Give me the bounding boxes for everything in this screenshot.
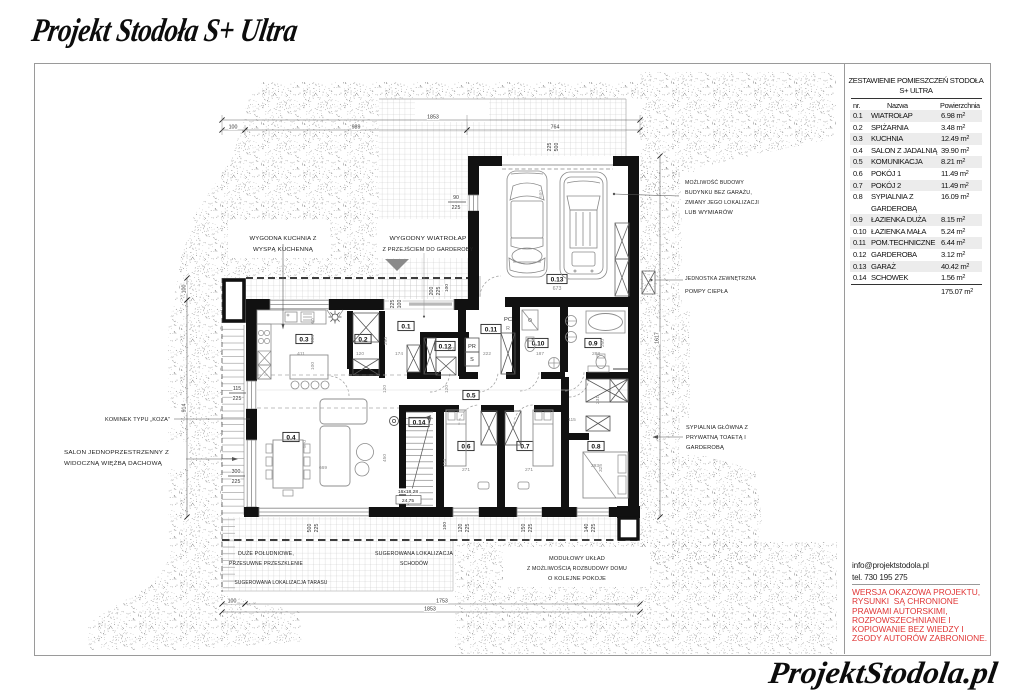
svg-text:115: 115	[568, 417, 576, 423]
svg-text:ZMIANY JEGO LOKALIZACJI: ZMIANY JEGO LOKALIZACJI	[685, 200, 759, 206]
svg-text:500: 500	[554, 143, 560, 152]
svg-text:580: 580	[538, 190, 544, 198]
svg-text:Z MOŻLIWOŚCIĄ ROZBUDOWY DOMU: Z MOŻLIWOŚCIĄ ROZBUDOWY DOMU	[527, 564, 627, 572]
svg-text:1753: 1753	[436, 598, 448, 604]
svg-text:R: R	[506, 326, 510, 332]
svg-text:989: 989	[352, 124, 361, 130]
svg-text:225: 225	[591, 524, 597, 533]
svg-text:1617: 1617	[655, 332, 661, 344]
svg-text:90: 90	[453, 195, 459, 201]
svg-text:231: 231	[595, 396, 601, 404]
svg-text:120: 120	[458, 524, 464, 533]
svg-text:100: 100	[182, 285, 188, 294]
svg-text:0.11: 0.11	[485, 326, 498, 333]
svg-text:0.3: 0.3	[299, 336, 308, 343]
svg-text:225: 225	[465, 524, 471, 533]
svg-text:225: 225	[390, 300, 396, 309]
svg-text:WYGODNY WIATROŁAP: WYGODNY WIATROŁAP	[390, 236, 467, 242]
svg-text:172: 172	[448, 346, 456, 351]
svg-text:WIDOCZNĄ WIĘŻBĄ DACHOWĄ: WIDOCZNĄ WIĘŻBĄ DACHOWĄ	[64, 460, 162, 467]
svg-text:SCHODÓW: SCHODÓW	[400, 560, 428, 567]
svg-text:POMPY CIEPŁA: POMPY CIEPŁA	[685, 289, 728, 295]
svg-text:325: 325	[598, 464, 604, 472]
svg-text:673: 673	[553, 286, 562, 292]
svg-text:250: 250	[600, 339, 606, 347]
svg-text:120: 120	[356, 351, 364, 357]
svg-text:100: 100	[310, 362, 316, 370]
svg-text:PRYWATNĄ TOAETĄ I: PRYWATNĄ TOAETĄ I	[686, 435, 746, 441]
svg-text:0.8: 0.8	[591, 443, 600, 450]
svg-text:PR: PR	[468, 344, 476, 350]
svg-text:LUB WYMIARÓW: LUB WYMIARÓW	[685, 209, 733, 216]
svg-text:MOŻLIWOŚĆ BUDOWY: MOŻLIWOŚĆ BUDOWY	[685, 178, 744, 186]
svg-text:225: 225	[233, 396, 242, 402]
svg-text:60: 60	[310, 318, 316, 324]
svg-text:1853: 1853	[424, 606, 436, 612]
svg-text:0.5: 0.5	[466, 392, 475, 399]
svg-text:100: 100	[397, 300, 403, 309]
svg-text:271: 271	[525, 467, 533, 473]
svg-text:164: 164	[310, 335, 316, 343]
svg-text:0.1: 0.1	[401, 323, 410, 330]
svg-text:225: 225	[547, 143, 553, 152]
svg-text:SALON JEDNOPRZESTRZENNY Z: SALON JEDNOPRZESTRZENNY Z	[64, 450, 170, 456]
svg-text:SYPIALNIA GŁÓWNA Z: SYPIALNIA GŁÓWNA Z	[686, 424, 749, 431]
svg-text:225: 225	[232, 479, 241, 485]
svg-text:Z PRZEJŚCIEM DO GARDEROBY: Z PRZEJŚCIEM DO GARDEROBY	[383, 245, 474, 253]
svg-text:140: 140	[584, 524, 590, 533]
svg-text:187: 187	[536, 351, 544, 357]
svg-text:1853: 1853	[427, 114, 439, 120]
svg-text:271: 271	[462, 467, 470, 473]
svg-text:120: 120	[382, 385, 388, 393]
svg-text:222: 222	[483, 351, 491, 357]
svg-text:24,75: 24,75	[402, 498, 415, 504]
svg-text:S: S	[470, 357, 474, 363]
svg-text:200: 200	[429, 287, 435, 296]
svg-text:914: 914	[182, 404, 188, 413]
svg-text:450: 450	[382, 454, 388, 462]
svg-text:MODUŁOWY UKŁAD: MODUŁOWY UKŁAD	[549, 556, 605, 562]
svg-text:115: 115	[233, 386, 241, 392]
svg-text:PC: PC	[504, 317, 512, 323]
svg-text:570: 570	[302, 440, 308, 448]
svg-text:283: 283	[592, 351, 600, 357]
svg-text:424: 424	[442, 459, 448, 467]
svg-text:GARDEROBĄ: GARDEROBĄ	[686, 445, 724, 451]
svg-text:290: 290	[383, 337, 389, 345]
svg-text:500: 500	[307, 524, 313, 533]
svg-text:KOMINEK TYPU „KOZA”: KOMINEK TYPU „KOZA”	[105, 417, 170, 423]
svg-text:0.13: 0.13	[551, 276, 564, 283]
svg-text:SUGEROWANA LOKALIZACJA TARASU: SUGEROWANA LOKALIZACJA TARASU	[235, 580, 328, 586]
svg-text:225: 225	[314, 524, 320, 533]
svg-text:100: 100	[444, 284, 450, 292]
svg-text:DUŻE POŁUDNIOWE,: DUŻE POŁUDNIOWE,	[238, 550, 294, 557]
svg-text:100: 100	[228, 598, 237, 604]
svg-text:SUGEROWANA LOKALIZACJA: SUGEROWANA LOKALIZACJA	[375, 551, 453, 557]
svg-text:225: 225	[452, 205, 461, 211]
svg-text:411: 411	[297, 351, 305, 357]
svg-text:O KOLEJNE POKOJE: O KOLEJNE POKOJE	[548, 576, 606, 582]
svg-text:0.7: 0.7	[520, 443, 529, 450]
svg-text:300: 300	[232, 469, 241, 475]
svg-text:120: 120	[444, 385, 450, 393]
svg-text:174: 174	[395, 351, 403, 357]
svg-text:100: 100	[229, 124, 238, 130]
svg-text:764: 764	[551, 124, 560, 130]
svg-text:225: 225	[528, 524, 534, 533]
svg-text:669: 669	[319, 465, 327, 471]
svg-text:0.9: 0.9	[588, 340, 597, 347]
svg-text:PRZESUWNE PRZESZKLENIE: PRZESUWNE PRZESZKLENIE	[229, 561, 303, 567]
svg-text:100: 100	[442, 522, 448, 530]
svg-text:WYGODNA KUCHNIA Z: WYGODNA KUCHNIA Z	[250, 236, 318, 242]
svg-text:JEDNOSTKA ZEWNĘTRZNA: JEDNOSTKA ZEWNĘTRZNA	[685, 276, 756, 282]
svg-text:150: 150	[521, 524, 527, 533]
svg-text:0.10: 0.10	[532, 340, 545, 347]
svg-text:16x18,28: 16x18,28	[398, 489, 418, 495]
svg-text:BUDYNKU BEZ GARAŻU,: BUDYNKU BEZ GARAŻU,	[685, 189, 752, 196]
svg-text:225: 225	[436, 287, 442, 296]
